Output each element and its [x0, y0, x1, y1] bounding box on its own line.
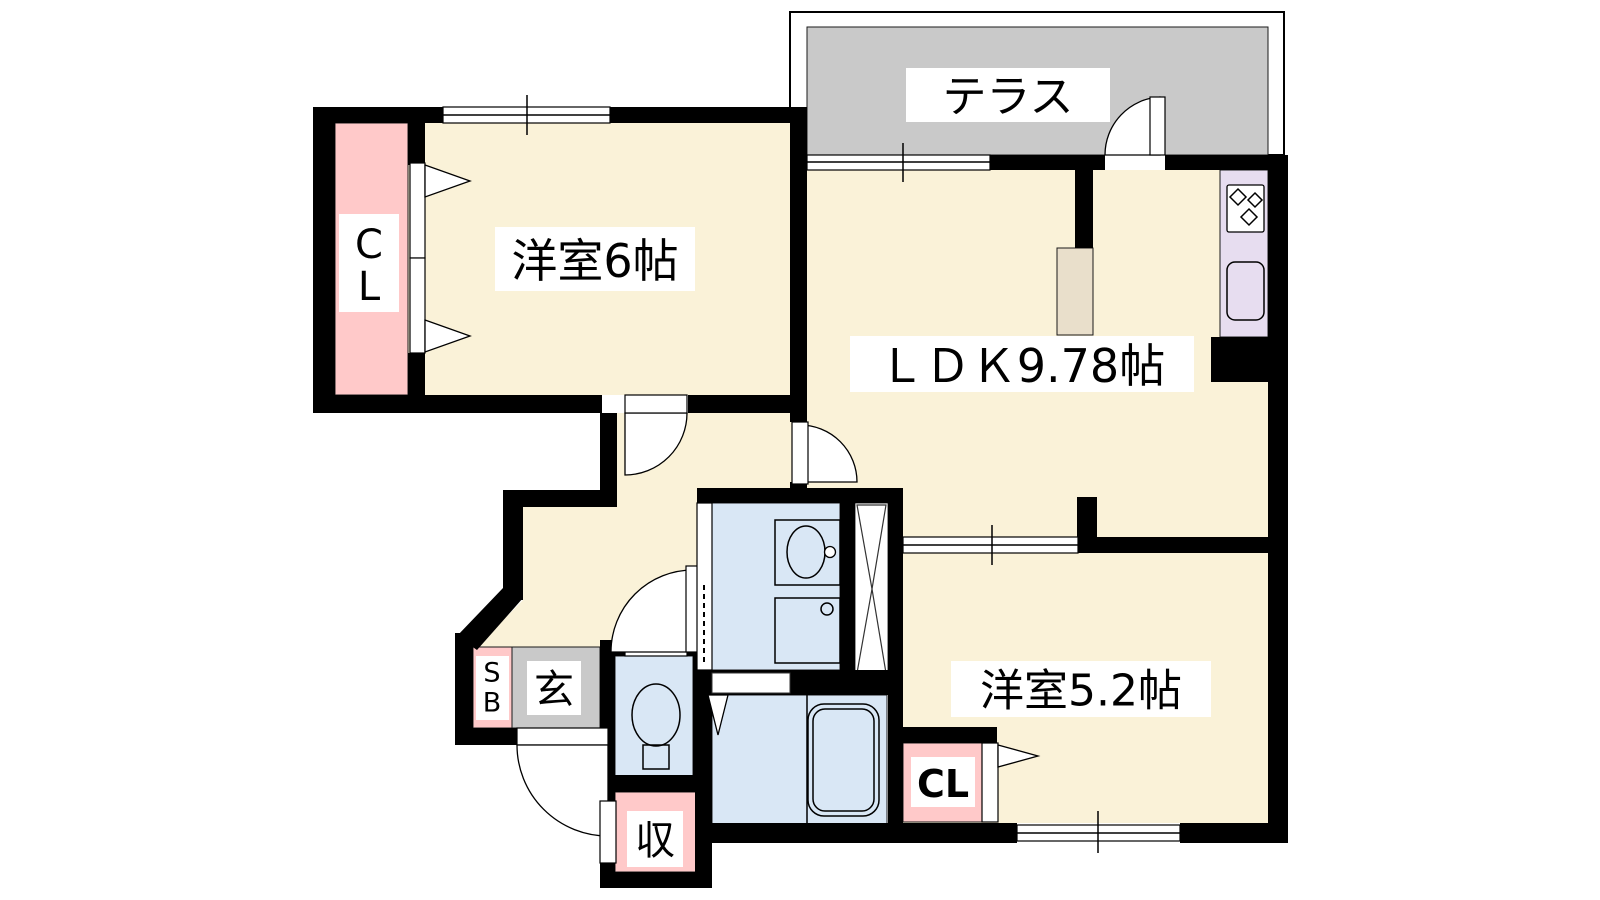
ldk-label: ＬＤＫ9.78帖 [879, 339, 1165, 393]
bathroom-area [712, 695, 887, 825]
label-storage: 収 [627, 811, 683, 867]
closet-6-label-line2: L [358, 264, 381, 310]
label-terrace: テラス [906, 68, 1110, 123]
accordion-door-washroom [697, 503, 712, 670]
entrance-label: 玄 [534, 667, 574, 713]
floorplan-canvas: 洋室6帖 テラス ＬＤＫ9.78帖 洋室5.2帖 C L S B 玄 収 CL [0, 0, 1600, 900]
label-closet-6: C L [339, 214, 399, 312]
floorplan-drawing: 洋室6帖 テラス ＬＤＫ9.78帖 洋室5.2帖 C L S B 玄 収 CL [0, 0, 1600, 900]
room-western-6-label: 洋室6帖 [511, 234, 678, 288]
closet-5-2-label: CL [917, 762, 969, 806]
label-room-western-6: 洋室6帖 [495, 227, 695, 291]
shoe-box-label-line1: S [483, 658, 500, 689]
shaft-cross-icon [855, 503, 888, 675]
room-western-5-2-label: 洋室5.2帖 [980, 666, 1182, 717]
closet-6-label-line1: C [355, 222, 383, 268]
label-closet-5-2: CL [911, 757, 975, 807]
label-ldk: ＬＤＫ9.78帖 [850, 336, 1194, 393]
terrace-label: テラス [942, 72, 1073, 123]
stove-icon [1227, 185, 1264, 232]
entrance-door [517, 728, 616, 863]
label-entrance: 玄 [527, 661, 581, 715]
shoe-box-label-line2: B [483, 688, 502, 719]
label-shoe-box: S B [476, 656, 509, 720]
kitchen-counter [1220, 170, 1268, 337]
ldk-counter [1057, 248, 1093, 335]
toilet-area [615, 656, 693, 780]
label-room-western-5-2: 洋室5.2帖 [951, 661, 1211, 717]
washroom-area [712, 503, 840, 670]
storage-label: 収 [635, 818, 675, 864]
